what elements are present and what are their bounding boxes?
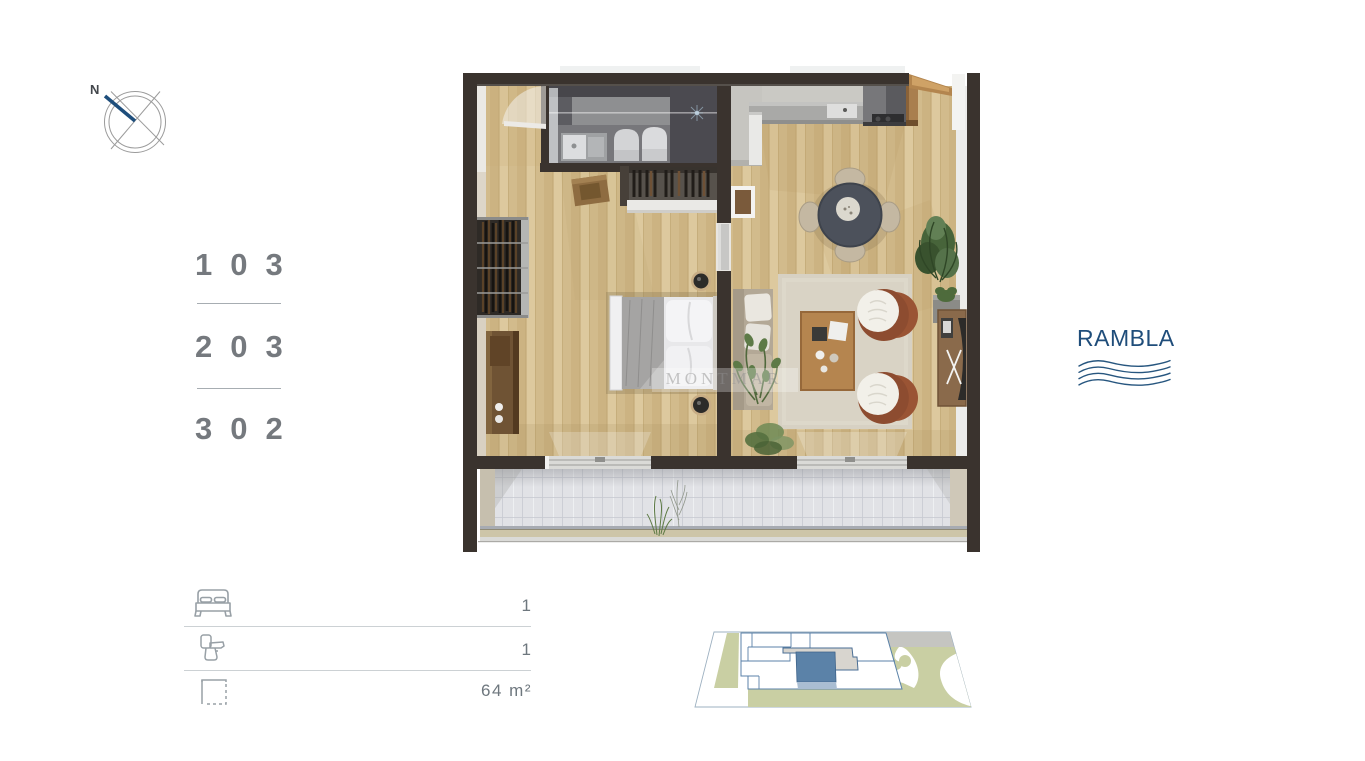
svg-text:MONTMAR: MONTMAR [666,369,783,388]
svg-text:N: N [90,82,99,97]
